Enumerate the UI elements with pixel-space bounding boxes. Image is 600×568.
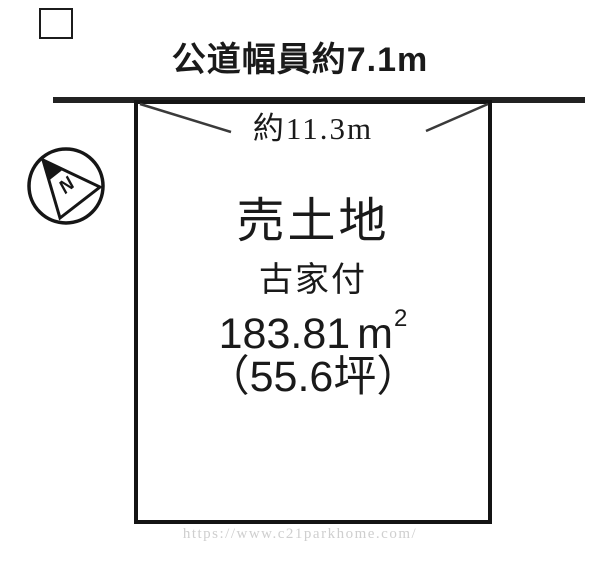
- land-plot-diagram: 公道幅員約7.1m 約11.3m N 売土地 古家付 183.81m2 （55.…: [0, 0, 600, 568]
- area-tsubo-label: （55.6坪）: [134, 354, 492, 401]
- road-width-label: 公道幅員約7.1m: [0, 42, 600, 79]
- area-sqm-value: 183.81: [219, 310, 351, 358]
- frontage-dimension-label: 約11.3m: [134, 112, 492, 146]
- blank-corner-box: [39, 8, 73, 39]
- watermark-url: https://www.c21parkhome.com/: [0, 527, 600, 542]
- area-sqm-unit-exponent: 2: [394, 305, 407, 332]
- area-sqm-unit: m: [357, 310, 393, 358]
- area-sqm-label: 183.81m2: [134, 306, 492, 358]
- property-condition-label: 古家付: [134, 262, 492, 299]
- compass-icon: N: [24, 144, 108, 228]
- listing-type-label: 売土地: [134, 196, 492, 249]
